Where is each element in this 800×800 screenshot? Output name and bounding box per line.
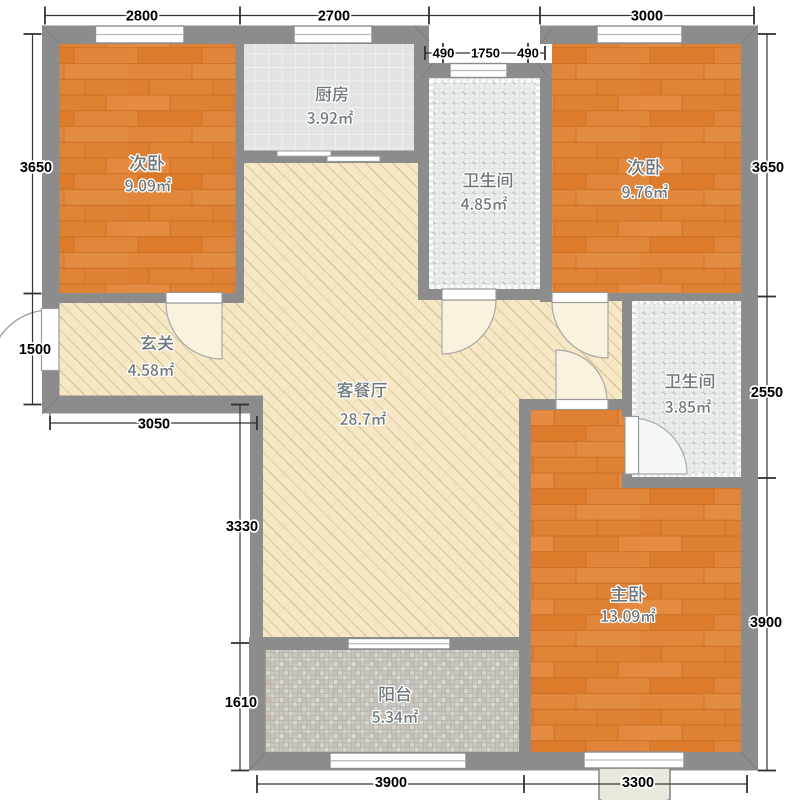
svg-text:490: 490 — [433, 46, 455, 61]
svg-text:1610: 1610 — [225, 695, 257, 711]
svg-text:3900: 3900 — [750, 615, 782, 631]
svg-text:3300: 3300 — [622, 775, 654, 791]
svg-text:2550: 2550 — [751, 385, 783, 401]
svg-text:1750: 1750 — [471, 46, 500, 61]
svg-text:2700: 2700 — [318, 9, 350, 25]
svg-text:3050: 3050 — [138, 417, 170, 433]
svg-text:1500: 1500 — [19, 342, 51, 358]
svg-text:3650: 3650 — [20, 160, 52, 176]
svg-text:2800: 2800 — [126, 9, 158, 25]
svg-text:490: 490 — [517, 46, 539, 61]
svg-text:3000: 3000 — [631, 9, 663, 25]
svg-text:3900: 3900 — [375, 775, 407, 791]
svg-text:3650: 3650 — [752, 160, 784, 176]
svg-text:3330: 3330 — [226, 519, 258, 535]
